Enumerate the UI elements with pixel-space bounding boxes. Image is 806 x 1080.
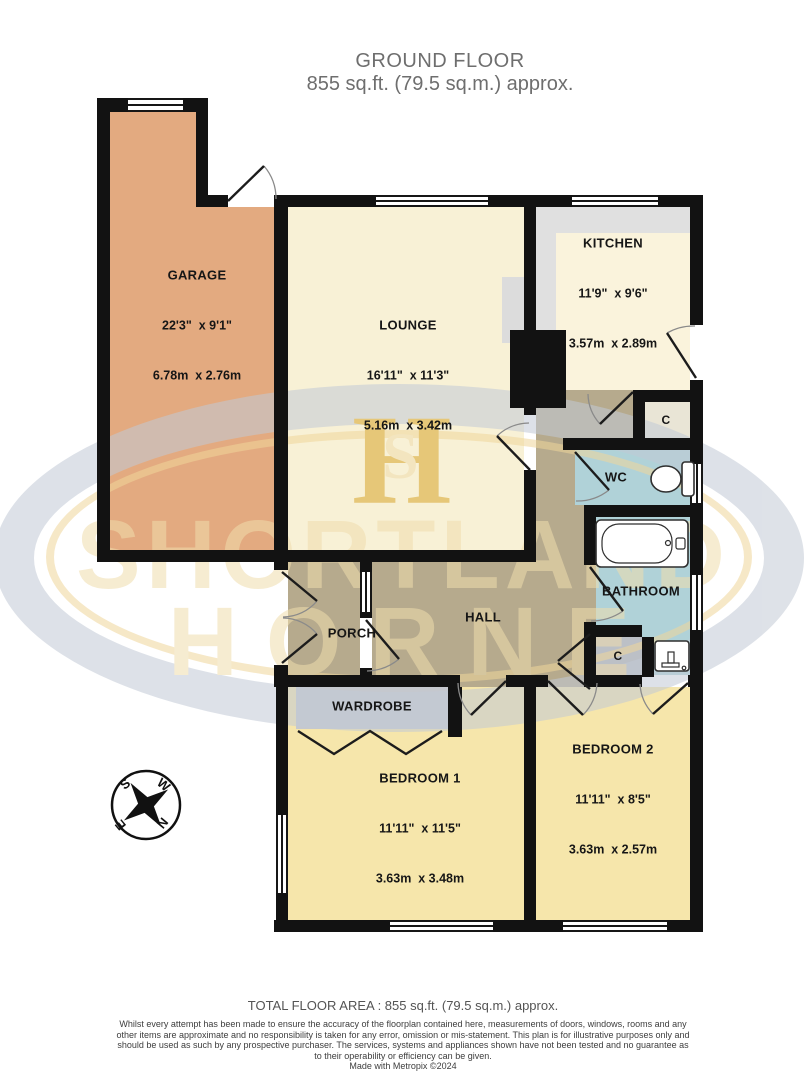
wall-segment [97,550,302,562]
wall-segment [276,893,288,932]
wall-segment [274,195,376,207]
bedroom2-label: BEDROOM 2 11'11" x 8'5" 3.63m x 2.57m [569,706,657,893]
wall-segment [642,637,654,677]
page-title: GROUND FLOOR 855 sq.ft. (79.5 sq.m.) app… [90,50,790,96]
footer: TOTAL FLOOR AREA : 855 sq.ft. (79.5 sq.m… [0,998,806,1072]
cupboard-top-name: C [657,413,675,427]
compass-rose: S W E N [112,771,180,839]
floorplan-page: GROUND FLOOR 855 sq.ft. (79.5 sq.m.) app… [0,0,806,1080]
window [563,920,667,932]
wall-segment [584,505,702,517]
window [690,575,703,630]
window [690,464,703,503]
garage-name: GARAGE [153,268,241,283]
bedroom2-name: BEDROOM 2 [569,742,657,757]
lounge-label: LOUNGE 16'11" x 11'3" 5.16m x 3.42m [364,282,452,469]
wall-segment [690,195,703,325]
cupboard-top-label: C [657,377,675,463]
disclaimer-text: Whilst every attempt has been made to en… [113,1019,693,1061]
wall-segment [97,98,110,562]
floor-area-subtitle: 855 sq.ft. (79.5 sq.m.) approx. [90,73,790,96]
wardrobe-name: WARDROBE [332,699,412,714]
window [276,815,288,893]
wall-segment [584,517,596,565]
bedroom1-dims-metric: 3.63m x 3.48m [376,872,464,886]
kitchen-dims-imperial: 11'9" x 9'6" [569,287,657,301]
garage-dims-imperial: 22'3" x 9'1" [153,319,241,333]
wall-segment [524,195,536,330]
compass-east-label: E [112,817,129,834]
wall-segment [276,675,288,815]
porch-name: PORCH [328,626,376,641]
wall-segment [196,195,228,207]
bathroom-name: BATHROOM [602,584,680,599]
wall-segment [524,408,536,415]
lounge-dims-imperial: 16'11" x 11'3" [364,369,452,383]
garage-label: GARAGE 22'3" x 9'1" 6.78m x 2.76m [153,232,241,419]
wall-segment [563,438,575,450]
wall-segment [524,470,536,550]
wardrobe-label: WARDROBE [332,663,412,750]
kitchen-dims-metric: 3.57m x 2.89m [569,337,657,351]
wall-segment [274,550,536,562]
compass-north-label: N [154,815,172,832]
wc-name: WC [605,470,627,485]
wall-segment [688,675,702,687]
wall-segment [448,687,462,737]
garage-dims-metric: 6.78m x 2.76m [153,369,241,383]
wall-segment [196,110,208,202]
wall-segment [274,562,288,570]
window [128,98,183,112]
kitchen-counter-left [536,233,556,330]
wall-segment [274,920,390,932]
window [376,195,488,207]
bedroom1-label: BEDROOM 1 11'11" x 11'5" 3.63m x 3.48m [376,735,464,922]
cupboard-bottom-label: C [609,613,627,699]
compass-south-label: S [117,775,134,792]
kitchen-name: KITCHEN [569,236,657,251]
bedroom1-name: BEDROOM 1 [376,771,464,786]
hall-name: HALL [465,610,501,625]
bedroom2-dims-metric: 3.63m x 2.57m [569,843,657,857]
wall-segment [667,920,702,932]
kitchen-label: KITCHEN 11'9" x 9'6" 3.57m x 2.89m [569,200,657,387]
wall-segment [97,98,128,112]
wall-segment [633,390,645,438]
wall-segment [536,195,572,207]
wc-label: WC [605,434,627,521]
wall-segment [493,920,563,932]
wall-segment [563,438,702,450]
bedroom2-dims-imperial: 11'11" x 8'5" [569,793,657,807]
compass-west-label: W [154,775,174,795]
bedroom1-dims-imperial: 11'11" x 11'5" [376,822,464,836]
chimney-breast [510,330,566,408]
window [390,920,493,932]
total-floor-area: TOTAL FLOOR AREA : 855 sq.ft. (79.5 sq.m… [0,998,806,1013]
wall-segment [274,665,288,675]
wall-segment [506,675,548,687]
hall-label: HALL [465,574,501,661]
metropix-credit: Made with Metropix ©2024 [0,1061,806,1072]
cupboard-bottom-name: C [609,649,627,663]
floor-title: GROUND FLOOR [90,50,790,73]
wall-segment [524,687,536,932]
wall-segment [274,195,288,562]
wall-segment [360,562,372,572]
lounge-dims-metric: 5.16m x 3.42m [364,419,452,433]
lounge-name: LOUNGE [364,318,452,333]
